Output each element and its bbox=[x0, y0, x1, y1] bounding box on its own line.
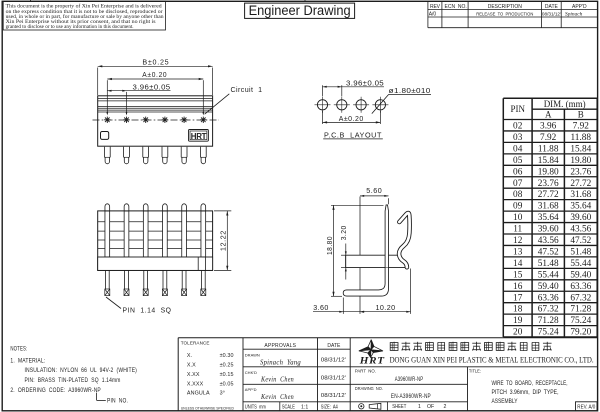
svg-text:51.48: 51.48 bbox=[570, 247, 591, 257]
svg-text:1:1: 1:1 bbox=[301, 405, 308, 411]
svg-text:04: 04 bbox=[513, 144, 523, 154]
svg-text:TITLE:: TITLE: bbox=[469, 368, 481, 373]
svg-text:Kevin Chen: Kevin Chen bbox=[260, 392, 294, 401]
svg-text:59.40: 59.40 bbox=[570, 270, 591, 280]
svg-text:27.72: 27.72 bbox=[570, 179, 591, 189]
svg-text:1: 1 bbox=[418, 404, 421, 410]
svg-text:63.36: 63.36 bbox=[570, 282, 591, 292]
svg-text:APP'D: APP'D bbox=[572, 4, 587, 10]
svg-text:18: 18 bbox=[513, 305, 523, 315]
svg-text:A/0: A/0 bbox=[429, 11, 437, 17]
svg-text:02: 02 bbox=[513, 122, 523, 132]
svg-text:3.96±0.05: 3.96±0.05 bbox=[133, 84, 171, 91]
svg-text:07: 07 bbox=[513, 179, 523, 189]
svg-text:06: 06 bbox=[513, 167, 523, 177]
svg-text:7.92: 7.92 bbox=[540, 133, 557, 143]
svg-text:10.20: 10.20 bbox=[376, 305, 396, 312]
svg-text:HRT: HRT bbox=[359, 356, 385, 366]
svg-text:63.36: 63.36 bbox=[538, 293, 559, 303]
svg-text:±0.25: ±0.25 bbox=[220, 363, 234, 369]
svg-text:27.72: 27.72 bbox=[538, 190, 559, 200]
svg-text:RELEASE TO PRODUCTION: RELEASE TO PRODUCTION bbox=[476, 11, 533, 16]
svg-text:CHK'D: CHK'D bbox=[245, 370, 257, 375]
svg-text:3°: 3° bbox=[220, 391, 225, 397]
svg-text:PITCH 3.96mm, DIP TYPE,: PITCH 3.96mm, DIP TYPE, bbox=[492, 390, 559, 396]
svg-text:75.24: 75.24 bbox=[538, 328, 559, 338]
svg-text:09: 09 bbox=[513, 202, 523, 212]
svg-text:A±0.20: A±0.20 bbox=[339, 116, 364, 123]
svg-text:REV. A/0: REV. A/0 bbox=[577, 405, 595, 411]
svg-text:APP'D: APP'D bbox=[245, 387, 257, 392]
svg-text:A: A bbox=[545, 109, 552, 119]
svg-text:08/31/12': 08/31/12' bbox=[321, 357, 346, 363]
svg-text:13: 13 bbox=[513, 247, 523, 257]
svg-text:75.24: 75.24 bbox=[570, 316, 591, 326]
svg-text:A±0.20: A±0.20 bbox=[142, 72, 167, 79]
svg-text:DONG GUAN XIN PEI PLASTIC & ME: DONG GUAN XIN PEI PLASTIC & METAL ELECTR… bbox=[390, 355, 594, 364]
svg-text:15: 15 bbox=[513, 270, 523, 280]
svg-text:7.92: 7.92 bbox=[573, 122, 590, 132]
svg-text:18.80: 18.80 bbox=[327, 236, 334, 255]
svg-text:P.C.B LAYOUT: P.C.B LAYOUT bbox=[324, 130, 382, 139]
svg-text:NOTES:: NOTES: bbox=[10, 345, 27, 352]
svg-text:B±0.25: B±0.25 bbox=[142, 59, 169, 66]
svg-text:12: 12 bbox=[513, 236, 523, 246]
svg-text:19.80: 19.80 bbox=[570, 156, 591, 166]
svg-text:2: 2 bbox=[444, 404, 447, 410]
svg-text:TOLERANCE: TOLERANCE bbox=[181, 340, 210, 345]
svg-text:±0.30: ±0.30 bbox=[220, 353, 234, 359]
svg-text:±0.05: ±0.05 bbox=[220, 382, 234, 388]
svg-text:APPROVALS: APPROVALS bbox=[264, 343, 296, 349]
svg-text:X.XX: X.XX bbox=[187, 372, 200, 378]
svg-text:51.48: 51.48 bbox=[538, 259, 559, 269]
svg-text:11.88: 11.88 bbox=[538, 144, 559, 154]
svg-text:A3960WR-NP: A3960WR-NP bbox=[395, 377, 424, 383]
svg-text:DRAWN: DRAWN bbox=[245, 352, 260, 357]
svg-text:08/31/12': 08/31/12' bbox=[321, 375, 346, 381]
svg-text:EN-A3960WR-NP: EN-A3960WR-NP bbox=[391, 394, 431, 400]
svg-text:HRT: HRT bbox=[191, 131, 207, 141]
svg-text:35.64: 35.64 bbox=[570, 202, 591, 212]
svg-text:47.52: 47.52 bbox=[538, 247, 559, 257]
svg-text:55.44: 55.44 bbox=[570, 259, 591, 269]
svg-text:10: 10 bbox=[513, 213, 523, 223]
svg-text:DESCRIPTION: DESCRIPTION bbox=[488, 4, 523, 10]
svg-text:Circuit 1: Circuit 1 bbox=[231, 87, 263, 94]
svg-text:11.88: 11.88 bbox=[571, 133, 592, 143]
svg-text:16: 16 bbox=[513, 282, 523, 292]
svg-text:PIN NO.: PIN NO. bbox=[107, 397, 128, 404]
svg-text:Spinach: Spinach bbox=[565, 12, 583, 18]
svg-text:UNITS mm: UNITS mm bbox=[245, 405, 266, 411]
svg-text:55.44: 55.44 bbox=[538, 270, 559, 280]
svg-text:59.40: 59.40 bbox=[538, 282, 559, 292]
svg-text:05: 05 bbox=[513, 156, 523, 166]
svg-text:UNLESS OTHERWISE SPECIFIED: UNLESS OTHERWISE SPECIFIED bbox=[181, 406, 234, 410]
svg-text:±0.15: ±0.15 bbox=[220, 372, 234, 378]
svg-text:5.60: 5.60 bbox=[366, 188, 382, 195]
svg-text:ASSEMBLY: ASSEMBLY bbox=[492, 399, 518, 405]
svg-text:17: 17 bbox=[513, 293, 523, 303]
svg-text:X.X: X.X bbox=[187, 363, 196, 369]
svg-text:31.68: 31.68 bbox=[570, 190, 591, 200]
svg-text:3.96: 3.96 bbox=[540, 122, 557, 132]
svg-text:20: 20 bbox=[513, 328, 523, 338]
svg-text:INSULATION: NYLON 66 UL 94: INSULATION: NYLON 66 UL 94V-2 (WHITE) bbox=[25, 367, 138, 374]
svg-text:SHEET: SHEET bbox=[392, 404, 407, 410]
svg-text:DATE: DATE bbox=[327, 343, 341, 349]
svg-text:WIRE TO BOARD, RECEPTACLE,: WIRE TO BOARD, RECEPTACLE, bbox=[492, 381, 568, 387]
svg-text:71.28: 71.28 bbox=[538, 316, 559, 326]
svg-text:19: 19 bbox=[513, 316, 523, 326]
svg-text:PIN 1.14 SQ: PIN 1.14 SQ bbox=[123, 308, 172, 315]
svg-text:DRAWING NO.: DRAWING NO. bbox=[355, 386, 383, 391]
svg-text:ANGULA: ANGULA bbox=[187, 391, 210, 397]
svg-text:35.64: 35.64 bbox=[538, 213, 559, 223]
svg-text:43.56: 43.56 bbox=[538, 236, 559, 246]
svg-text:2. ORDERING CODE: A3960WR-N: 2. ORDERING CODE: A3960WR-NP bbox=[10, 387, 101, 394]
svg-text:3.60: 3.60 bbox=[313, 305, 329, 312]
svg-text:granted to disclose or to use: granted to disclose or to use any inform… bbox=[6, 25, 134, 30]
svg-text:DIM. (mm): DIM. (mm) bbox=[544, 99, 586, 109]
svg-text:B: B bbox=[578, 109, 584, 119]
svg-text:SIZE: A4: SIZE: A4 bbox=[321, 405, 338, 411]
svg-text:23.76: 23.76 bbox=[570, 167, 591, 177]
svg-text:1. MATERIAL:: 1. MATERIAL: bbox=[10, 357, 45, 364]
svg-text:Kevin Chen: Kevin Chen bbox=[260, 374, 294, 383]
svg-text:PIN: BRASS TIN-PLATED SQ 1: PIN: BRASS TIN-PLATED SQ 1.14mm bbox=[25, 377, 121, 384]
svg-text:12.22: 12.22 bbox=[221, 230, 228, 251]
svg-text:08/31/12': 08/31/12' bbox=[542, 11, 561, 16]
svg-text:OF: OF bbox=[427, 404, 434, 410]
svg-text:11: 11 bbox=[513, 225, 522, 235]
svg-text:43.56: 43.56 bbox=[570, 225, 591, 235]
svg-text:31.68: 31.68 bbox=[538, 202, 559, 212]
svg-text:PART NO.: PART NO. bbox=[355, 369, 376, 374]
svg-text:71.28: 71.28 bbox=[570, 305, 591, 315]
svg-text:3.20: 3.20 bbox=[341, 225, 348, 240]
svg-text:39.60: 39.60 bbox=[538, 225, 559, 235]
svg-text:47.52: 47.52 bbox=[570, 236, 591, 246]
svg-text:14: 14 bbox=[513, 259, 523, 269]
svg-text:39.60: 39.60 bbox=[570, 213, 591, 223]
svg-text:3.96±0.05: 3.96±0.05 bbox=[346, 80, 384, 87]
svg-text:ECN NO.: ECN NO. bbox=[445, 4, 467, 10]
svg-text:67.32: 67.32 bbox=[570, 293, 591, 303]
svg-text:PIN: PIN bbox=[510, 104, 525, 114]
svg-text:03: 03 bbox=[513, 133, 523, 143]
svg-text:X.XXX: X.XXX bbox=[187, 382, 204, 388]
svg-text:08: 08 bbox=[513, 190, 523, 200]
svg-text:19.80: 19.80 bbox=[538, 167, 559, 177]
svg-text:REV: REV bbox=[430, 4, 441, 10]
svg-text:15.84: 15.84 bbox=[570, 144, 591, 154]
svg-text:08/31/12': 08/31/12' bbox=[321, 393, 346, 399]
svg-text:Spinach Yang: Spinach Yang bbox=[260, 358, 301, 367]
svg-text:Engineer Drawing: Engineer Drawing bbox=[249, 3, 351, 19]
svg-text:SCALE: SCALE bbox=[282, 405, 295, 411]
svg-text:23.76: 23.76 bbox=[538, 179, 559, 189]
svg-text:X.: X. bbox=[187, 353, 192, 359]
svg-text:15.84: 15.84 bbox=[538, 156, 559, 166]
svg-text:DATE: DATE bbox=[545, 4, 559, 10]
svg-text:67.32: 67.32 bbox=[538, 305, 559, 315]
svg-text:79.20: 79.20 bbox=[570, 328, 591, 338]
